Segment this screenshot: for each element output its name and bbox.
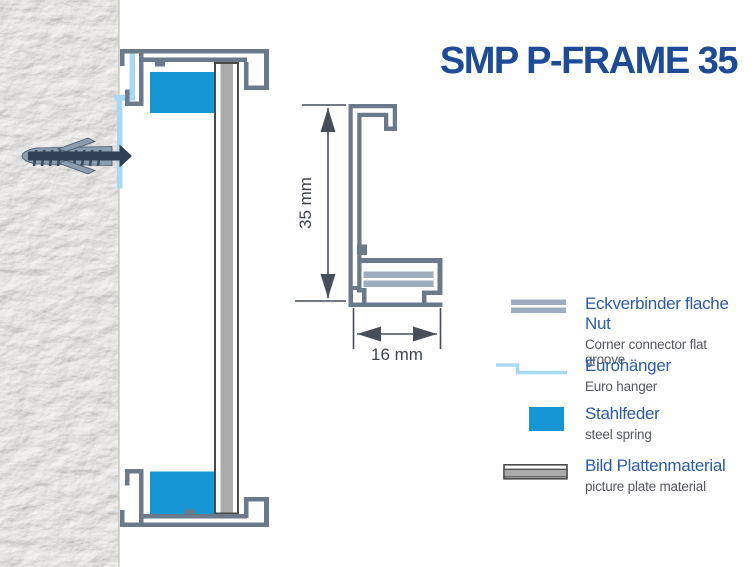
corner-connector-groove xyxy=(364,272,434,288)
legend-swatch-euro-hanger xyxy=(496,365,567,373)
legend-item-steel-spring: Stahlfeder steel spring xyxy=(585,404,750,442)
legend-swatch-corner-connector xyxy=(511,300,566,314)
legend-label-de: Bild Plattenmaterial xyxy=(585,456,750,476)
legend-label-en: Euro hanger xyxy=(585,379,750,394)
diagram-page: SMP P-FRAME 35 35 mm 16 mm Eckverbinder … xyxy=(0,0,756,567)
steel-spring-bottom xyxy=(150,472,214,515)
dimension-width xyxy=(354,308,441,349)
legend-item-euro-hanger: Eurohänger Euro hanger xyxy=(585,356,750,394)
dimension-height-label: 35 mm xyxy=(297,163,315,243)
legend-swatch-plate-material xyxy=(504,465,567,479)
legend-label-de: Stahlfeder xyxy=(585,404,750,424)
legend-swatch-steel-spring xyxy=(529,407,564,431)
wall-texture xyxy=(0,0,120,567)
steel-spring-top xyxy=(150,72,214,113)
legend-label-en: steel spring xyxy=(585,427,750,442)
dimension-width-label: 16 mm xyxy=(355,346,439,364)
picture-plate xyxy=(215,63,238,514)
profile-cross-section xyxy=(349,111,443,308)
legend-label-de: Eckverbinder flache Nut xyxy=(585,294,750,334)
legend-item-plate-material: Bild Plattenmaterial picture plate mater… xyxy=(585,456,750,494)
page-title: SMP P-FRAME 35 xyxy=(400,42,737,82)
legend-label-en: picture plate material xyxy=(585,479,750,494)
legend-label-de: Eurohänger xyxy=(585,356,750,376)
